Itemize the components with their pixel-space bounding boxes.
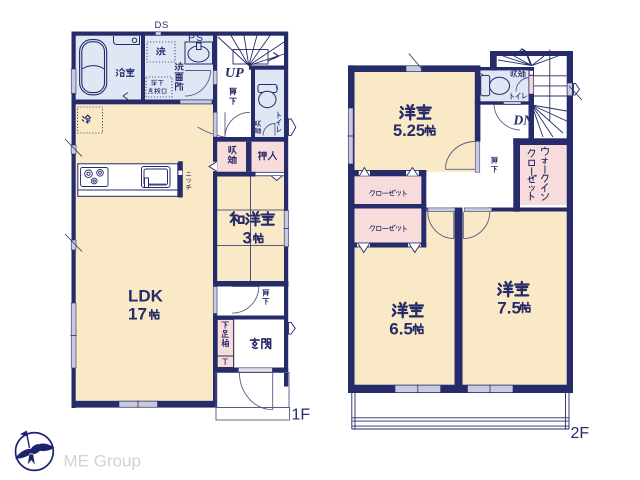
svg-text:T: T (222, 357, 228, 368)
svg-text:ME Group: ME Group (64, 452, 141, 471)
svg-text:7.5: 7.5 (497, 299, 521, 318)
svg-text:5.25: 5.25 (393, 122, 425, 140)
svg-text:DS: DS (155, 20, 169, 31)
svg-text:3: 3 (243, 229, 252, 248)
svg-text:UP: UP (225, 66, 244, 81)
svg-text:DN: DN (513, 113, 535, 128)
svg-text:6.5: 6.5 (389, 320, 413, 339)
svg-text:1F: 1F (292, 407, 311, 424)
svg-text:17: 17 (128, 305, 147, 324)
svg-text:2F: 2F (571, 425, 590, 442)
svg-text:LDK: LDK (128, 287, 164, 306)
svg-text:PS: PS (188, 32, 204, 44)
